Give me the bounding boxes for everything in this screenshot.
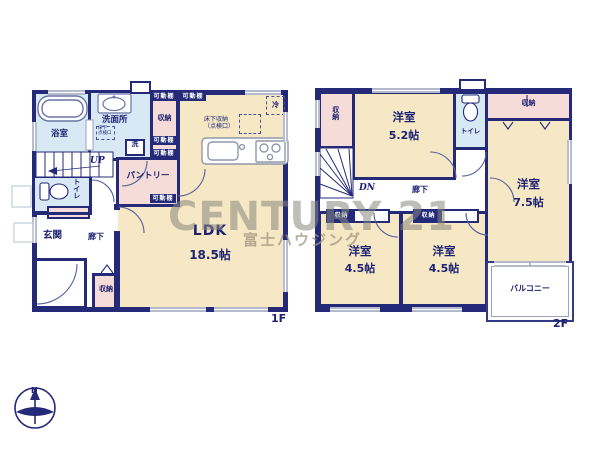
ldk-size-label: 18.5帖 [176, 249, 244, 262]
shelf-tag-5: 可動棚 [150, 194, 176, 203]
shelf-tag-1: 可動棚 [151, 92, 177, 101]
hallway2-label: 廊下 [412, 186, 428, 195]
underfloor-storage-label: 床下収納（点検口） [204, 117, 234, 130]
bay-window-toilet2 [459, 79, 486, 91]
pantry-label: パントリー [118, 172, 178, 181]
balcony-label: バルコニー [488, 285, 572, 294]
wall-genkan-top [32, 212, 92, 215]
fridge-label: 冷 [266, 102, 285, 110]
washer-label: 洗 [125, 141, 145, 149]
entrance-label: 玄関 [43, 231, 62, 241]
storage-left-label: 収納 [331, 106, 339, 136]
entrance-porch [34, 258, 87, 309]
floorplan-canvas: 可動棚 可動棚 可動棚 可動棚 可動棚 洗 床下点検口 床下収納（点検口） 冷 … [0, 0, 600, 450]
wall-hall-ldk-stub [114, 204, 120, 210]
stairs-up-label: UP [90, 157, 105, 167]
wall-hall-ldk [114, 231, 120, 310]
bathroom-label: 浴室 [51, 130, 68, 139]
underfloor-access-label: 床下点検口 [98, 127, 112, 137]
room75-name-label: 洋室 [485, 178, 572, 191]
shelf-tag-2: 可動棚 [180, 92, 206, 101]
room45b-size-label: 4.5帖 [400, 263, 488, 275]
hallway1-label: 廊下 [88, 233, 104, 242]
room52-name-label: 洋室 [352, 111, 456, 124]
storage-bottom-label: 収納 [93, 286, 119, 294]
stairs-dn-label: DN [359, 184, 375, 194]
closet-tag-a: 収納 [328, 211, 355, 221]
room-45b [400, 211, 488, 307]
closet-tag-b: 収納 [415, 211, 442, 221]
room45a-name-label: 洋室 [318, 245, 402, 258]
compass-north-label: N [31, 387, 38, 396]
floor2-label: 2F [553, 318, 568, 330]
room75-size-label: 7.5帖 [485, 197, 572, 209]
toilet2-room [453, 91, 488, 150]
room-75 [485, 118, 572, 265]
underfloor-storage-box [239, 114, 261, 134]
room45a-size-label: 4.5帖 [318, 263, 402, 275]
bathroom-room [32, 90, 92, 157]
room-45a [318, 211, 402, 307]
toilet2-label: トイレ [453, 128, 488, 135]
shelf-tag-4: 可動棚 [151, 149, 177, 158]
floor1-label: 1F [271, 313, 286, 325]
storage-top-label: 収納 [151, 115, 178, 123]
bay-window-washroom [130, 81, 151, 94]
room52-size-label: 5.2帖 [352, 130, 456, 142]
room45b-name-label: 洋室 [400, 245, 488, 258]
ldk-name-label: LDK [178, 224, 242, 239]
storage-top2-label: 収納 [485, 100, 572, 108]
floor2-wall-bottom [315, 307, 492, 312]
washroom-label: 洗面所 [102, 116, 128, 125]
toilet1-label: トイレ [72, 178, 80, 210]
shelf-tag-3: 可動棚 [151, 136, 177, 145]
